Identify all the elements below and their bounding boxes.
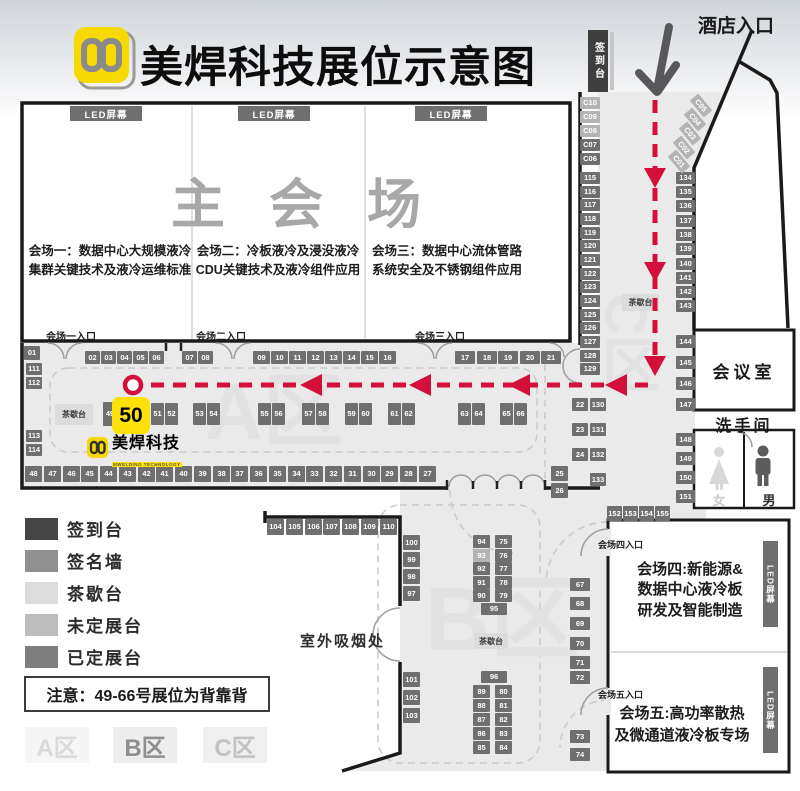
signin-desk: 签到台 [588,30,608,92]
session1-line1: 会场一：数据中心大规模液冷 [26,242,194,261]
hall5-topic: 会场五:高功率散热 及微通道液冷板专场 [606,703,758,747]
legend-swatch [25,518,58,540]
legend-swatch [25,582,58,604]
hall5-line2: 及微通道液冷板专场 [606,725,758,747]
meeting-room-label: 会议室 [694,358,794,383]
hall5-entrance-label: 会场五入口 [598,688,643,701]
hall4-line2: 数据中心液冷板 [622,580,758,600]
zone-chip-C区: C区 [203,727,267,763]
session3-topic: 会场三：数据中心流体管路 系统安全及不锈钢组件应用 [368,242,526,281]
route-destination-marker [125,377,141,393]
led-screen-3: LED屏幕 [415,106,487,121]
hall5-line1: 会场五:高功率散热 [606,703,758,725]
hotel-entrance-label: 酒店入口 [698,11,774,38]
led-screen-2: LED屏幕 [238,106,310,121]
session3-line2: 系统安全及不锈钢组件应用 [368,261,526,280]
legend-item-3: 茶歇台 [25,580,124,605]
map-logo-name: 美焊科技 [112,435,182,453]
hall4-line1: 会场四:新能源& [622,560,758,580]
session1-topic: 会场一：数据中心大规模液冷 集群关键技术及液冷运维标准 [26,242,194,281]
hall4-entrance-label: 会场四入口 [598,538,643,551]
legend-label: 签名墙 [67,548,124,573]
zone-chip-A区: A区 [25,727,89,763]
legend-item-2: 签名墙 [25,548,124,573]
legend-swatch [25,614,58,636]
legend-label: 未定展台 [67,612,143,637]
signature-wall [610,32,614,90]
note-box: 注意：49-66号展位为背靠背 [24,676,270,712]
female-toilet-label: 女 [694,490,744,509]
hall5-led-screen: LED屏幕 [763,667,778,753]
legend-swatch [25,646,58,668]
zone-chip-B区: B区 [113,727,177,763]
map-logo: 美焊科技 MWELDING TECHNOLOGY [86,435,182,471]
legend-label: 茶歇台 [67,580,124,605]
legend-item-5: 已定展台 [25,644,143,669]
legend-label: 已定展台 [67,644,143,669]
session2-entrance-label: 会场二入口 [196,328,246,343]
male-toilet-label: 男 [744,490,794,509]
legend-label: 签到台 [67,516,124,541]
session3-entrance-label: 会场三入口 [415,328,465,343]
legend-item-1: 签到台 [25,516,124,541]
hall4-topic: 会场四:新能源& 数据中心液冷板 研发及智能制造 [622,560,758,621]
map-logo-subtitle: MWELDING TECHNOLOGY [112,462,182,467]
session2-line2: CDU关键技术及液冷组件应用 [194,261,362,280]
led-screen-1: LED屏幕 [70,106,142,121]
main-hall-title: 主会场 [22,160,570,239]
session2-line1: 会场二：冷板液冷及浸没液冷 [194,242,362,261]
floorplan-page: A区 B区 C区 [0,0,800,791]
hall4-line3: 研发及智能制造 [622,601,758,621]
session1-line2: 集群关键技术及液冷运维标准 [26,261,194,280]
session3-line1: 会场三：数据中心流体管路 [368,242,526,261]
page-title: 美焊科技展位示意图 [140,33,536,95]
session1-entrance-label: 会场一入口 [46,328,96,343]
restroom-label: 洗手间 [694,412,794,436]
session2-topic: 会场二：冷板液冷及浸没液冷 CDU关键技术及液冷组件应用 [194,242,362,281]
hall4-led-screen: LED屏幕 [763,541,778,627]
legend-swatch [25,550,58,572]
smoking-area-label: 室外吸烟处 [300,630,385,651]
legend-item-4: 未定展台 [25,612,143,637]
